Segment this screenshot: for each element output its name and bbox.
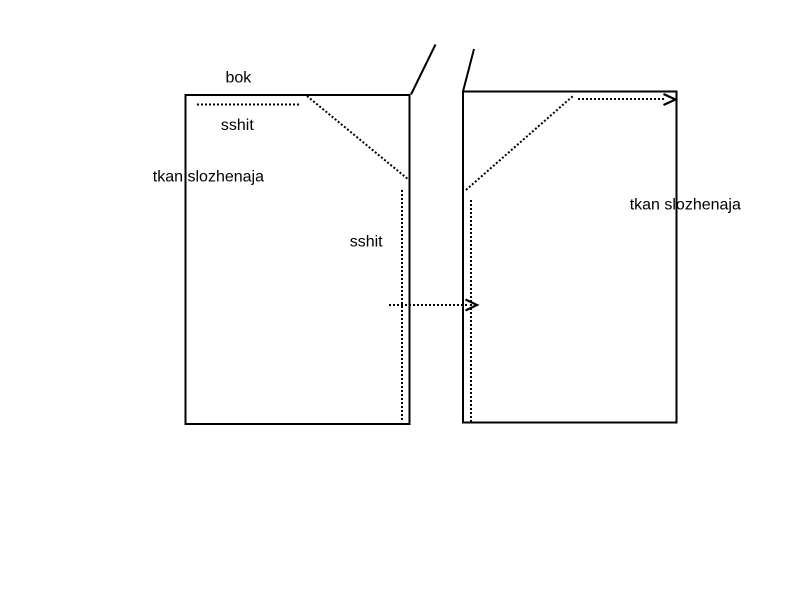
svg-text:tkan slozhenaja: tkan slozhenaja [153,169,264,186]
svg-text:bok: bok [226,70,253,87]
svg-text:tkan slozhenaja: tkan slozhenaja [630,196,741,213]
svg-text:sshit: sshit [221,117,254,134]
svg-text:sshit: sshit [350,233,383,250]
